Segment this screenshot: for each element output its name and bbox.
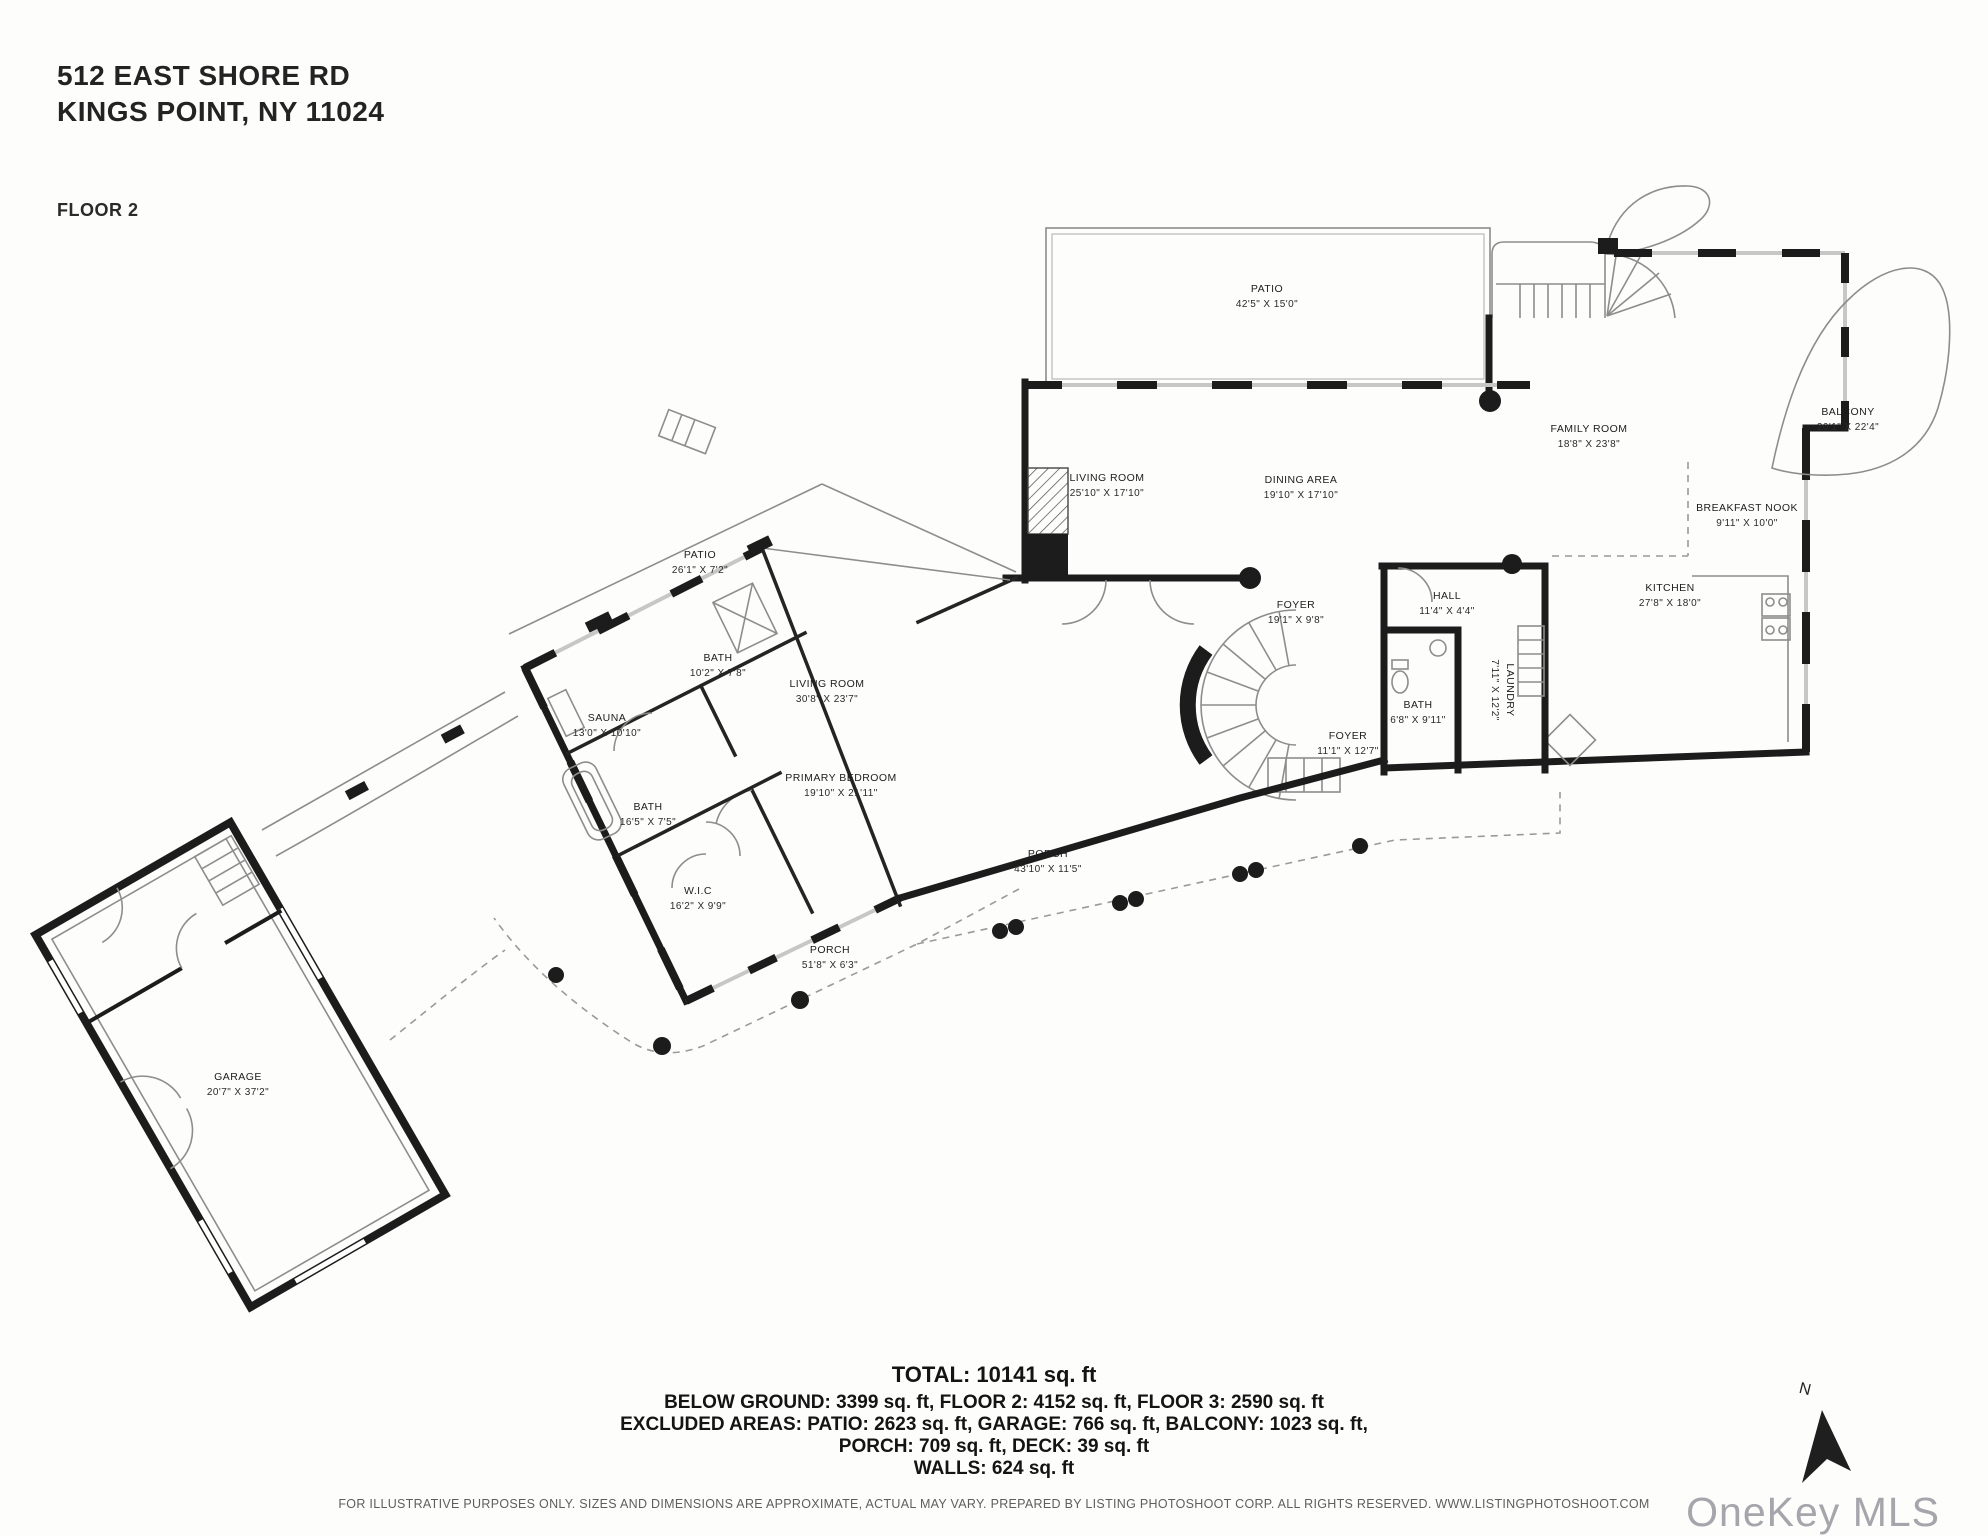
garage-walls: [36, 822, 446, 1307]
room-label: PORCH43'10" X 11'5": [1014, 847, 1082, 877]
room-label: PATIO42'5" X 15'0": [1236, 282, 1298, 312]
room-label: FOYER11'1" X 12'7": [1317, 729, 1379, 759]
room-label: SAUNA13'0" X 10'10": [573, 711, 641, 741]
mls-watermark: OneKey MLS: [1686, 1489, 1940, 1536]
lower-living-walls: [900, 760, 1384, 898]
room-label: DINING AREA19'10" X 17'10": [1264, 473, 1338, 503]
room-label: LIVING ROOM25'10" X 17'10": [1070, 471, 1145, 501]
main-block-walls: [918, 382, 1530, 624]
summary-line: BELOW GROUND: 3399 sq. ft, FLOOR 2: 4152…: [0, 1392, 1988, 1414]
room-label: BATH6'8" X 9'11": [1390, 698, 1446, 728]
summary-line: WALLS: 624 sq. ft: [0, 1458, 1988, 1480]
hall-block-walls: [1382, 554, 1545, 772]
room-label: GARAGE20'7" X 37'2": [207, 1070, 269, 1100]
area-summary: TOTAL: 10141 sq. ft BELOW GROUND: 3399 s…: [0, 1362, 1988, 1480]
room-label: KITCHEN27'8" X 18'0": [1639, 581, 1701, 611]
porch-outlines: [494, 792, 1560, 1055]
room-label: PRIMARY BEDROOM19'10" X 21'11": [785, 771, 896, 801]
room-label: PATIO26'1" X 7'2": [672, 548, 728, 578]
balcony-outline: [1772, 268, 1950, 475]
room-label: HALL11'4" X 4'4": [1419, 589, 1475, 619]
spiral-stair: [1188, 610, 1340, 800]
floor-plan: PATIO42'5" X 15'0"LIVING ROOM25'10" X 17…: [0, 0, 1988, 1536]
room-label: BALCONY20'1" X 22'4": [1817, 405, 1879, 435]
room-label: FOYER19'1" X 9'8": [1268, 598, 1324, 628]
fireplace: [1028, 468, 1068, 534]
room-label: FAMILY ROOM18'8" X 23'8": [1551, 422, 1628, 452]
floor-plan-page: 512 EAST SHORE RD KINGS POINT, NY 11024 …: [0, 0, 1988, 1536]
room-label: LIVING ROOM30'8" X 23'7": [790, 677, 865, 707]
summary-line: EXCLUDED AREAS: PATIO: 2623 sq. ft, GARA…: [0, 1414, 1988, 1436]
room-label: BATH16'5" X 7'5": [620, 800, 676, 830]
curved-stair: [1479, 186, 1710, 412]
walkway: [262, 692, 518, 1040]
room-label: BATH10'2" X 7'8": [690, 651, 746, 681]
room-label: LAUNDRY7'11" X 12'2": [1487, 659, 1517, 721]
floor-plan-drawing: [0, 0, 1988, 1536]
room-label: W.I.C16'2" X 9'9": [670, 884, 726, 914]
summary-line: PORCH: 709 sq. ft, DECK: 39 sq. ft: [0, 1436, 1988, 1458]
room-label: PORCH51'8" X 6'3": [802, 943, 858, 973]
left-wing-walls: [509, 410, 1016, 1001]
room-label: BREAKFAST NOOK9'11" X 10'0": [1696, 501, 1798, 531]
total-area: TOTAL: 10141 sq. ft: [0, 1362, 1988, 1388]
